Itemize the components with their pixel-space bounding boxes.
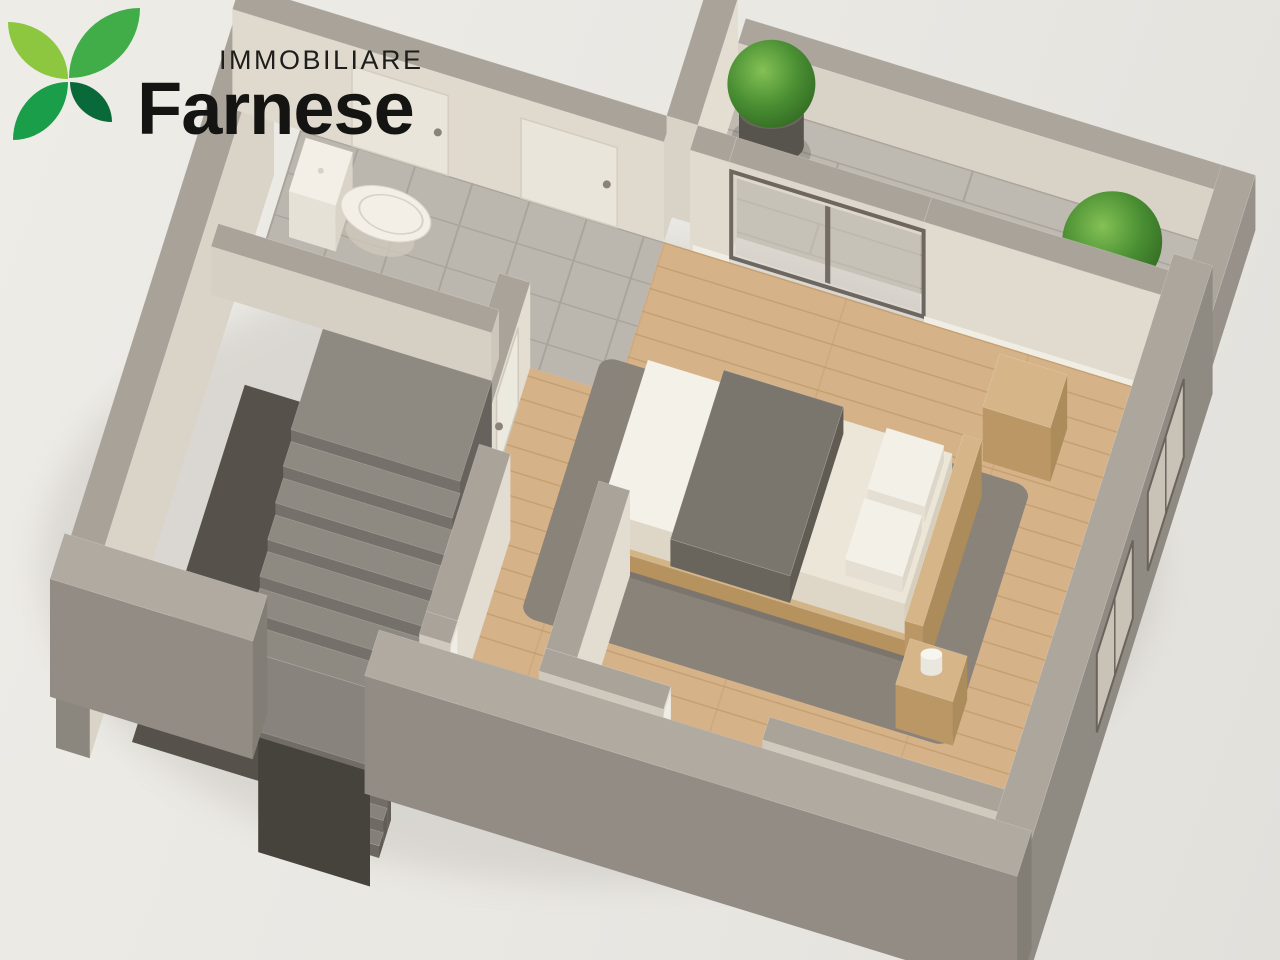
french-window-mullion	[825, 202, 830, 284]
side-cabinet	[983, 354, 1067, 482]
logo-leaf-icon	[69, 8, 140, 78]
logo-leaf-icon	[8, 22, 68, 79]
logo-leaf-icon	[70, 82, 112, 122]
plant-bush-1	[727, 40, 815, 128]
logo-brand-name: Farnese	[137, 66, 414, 151]
bedroom-door-handle	[495, 422, 503, 430]
logo-leaf-icon	[13, 82, 68, 140]
page: IMMOBILIARE Farnese	[0, 0, 1280, 960]
door-handle-2	[603, 180, 611, 188]
cup	[921, 648, 943, 676]
logo: IMMOBILIARE Farnese	[0, 0, 520, 220]
